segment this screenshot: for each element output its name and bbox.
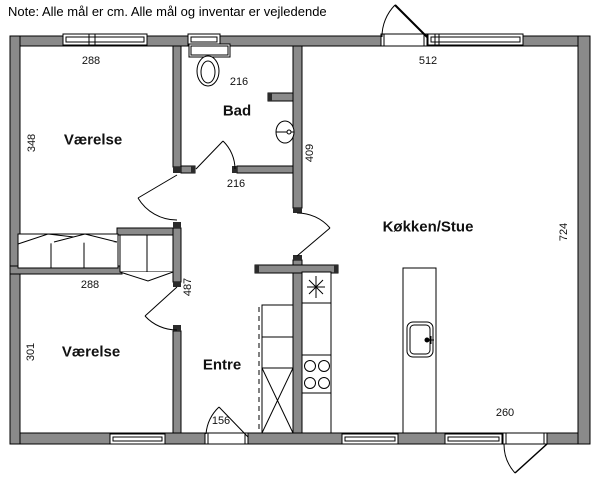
window-icon: [342, 434, 398, 444]
door-openings: [205, 34, 547, 444]
dim-bathroom-width-bottom: 216: [227, 178, 245, 190]
wardrobe-icon: [18, 234, 118, 268]
terrace-door-threshold: [503, 433, 547, 444]
dim-bathroom-width-top: 216: [230, 76, 248, 88]
window-icon: [445, 434, 502, 444]
bedroom-top-door-swing: [138, 175, 177, 220]
dim-hall-length: 487: [182, 278, 194, 296]
tall-cabinet-icon: [259, 305, 293, 433]
front-door-threshold: [381, 34, 427, 46]
bedroom-bottom-door-swing: [145, 287, 177, 330]
washbasin-icon: [276, 121, 294, 143]
dim-entre-door-width: 156: [212, 415, 230, 427]
room-label-bedroom-top: Værelse: [64, 132, 122, 149]
kitchen-sink-icon: [407, 322, 434, 357]
dim-bedroom-bottom-height: 301: [25, 343, 37, 361]
entre-door-threshold: [205, 433, 248, 444]
window-icon: [188, 34, 220, 45]
dim-kitchen-width: 512: [419, 55, 437, 67]
window-icon: [110, 434, 165, 444]
front-door-swing: [382, 5, 427, 37]
wardrobe-icon: [120, 235, 173, 281]
dim-bedroom-top-height: 348: [26, 134, 38, 152]
dim-terrace-door-offset: 260: [496, 407, 514, 419]
dim-bedroom-top-width: 288: [82, 55, 100, 67]
room-label-bathroom: Bad: [223, 103, 251, 120]
room-label-bedroom-bottom: Værelse: [62, 344, 120, 361]
bathroom-door-swing: [196, 141, 235, 169]
plan-note: Note: Alle mål er cm. Alle mål og invent…: [8, 4, 327, 19]
dim-kitchen-height: 724: [558, 223, 570, 241]
room-label-hall: Entre: [203, 357, 241, 374]
room-label-kitchen-living: Køkken/Stue: [383, 219, 474, 236]
dim-bedroom-bottom-width: 288: [81, 279, 99, 291]
kitchen-door-swing: [297, 213, 330, 256]
floor-plan: Note: Alle mål er cm. Alle mål og invent…: [0, 0, 600, 480]
dim-bath-hall-depth: 409: [304, 144, 316, 162]
window-icon: [428, 34, 523, 45]
window-icon: [63, 34, 147, 45]
terrace-door-swing: [504, 444, 547, 473]
toilet-icon: [189, 44, 230, 86]
